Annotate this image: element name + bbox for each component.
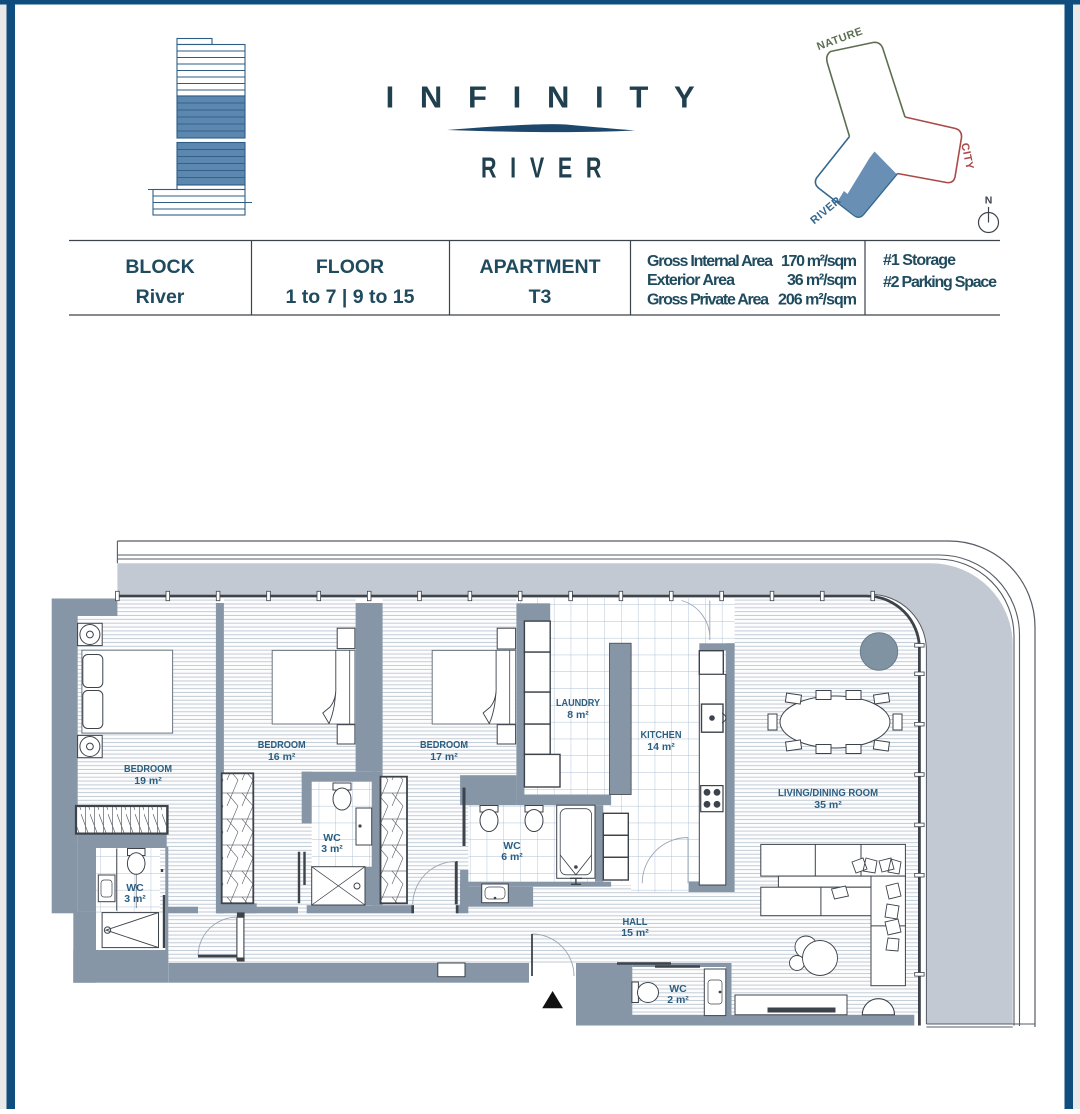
svg-text:8 m²: 8 m²	[567, 709, 589, 721]
svg-text:T3: T3	[529, 286, 552, 308]
svg-text:15 m²: 15 m²	[621, 927, 649, 939]
svg-text:BEDROOM: BEDROOM	[124, 763, 172, 775]
svg-text:INFINITY: INFINITY	[386, 80, 721, 115]
svg-text:FLOOR: FLOOR	[316, 256, 384, 278]
svg-text:Gross Private Area: Gross Private Area	[647, 292, 769, 309]
svg-text:River: River	[136, 286, 185, 308]
svg-text:35 m²: 35 m²	[814, 799, 842, 811]
svg-text:Exterior Area: Exterior Area	[647, 272, 735, 289]
svg-text:17 m²: 17 m²	[430, 751, 458, 763]
svg-text:LAUNDRY: LAUNDRY	[556, 697, 600, 709]
svg-text:3 m²: 3 m²	[124, 893, 146, 905]
svg-text:1 to 7 | 9 to 15: 1 to 7 | 9 to 15	[286, 286, 415, 308]
svg-text:36 m²/sqm: 36 m²/sqm	[787, 272, 857, 289]
svg-text:N: N	[985, 195, 993, 207]
svg-text:2 m²: 2 m²	[667, 994, 689, 1006]
svg-text:KITCHEN: KITCHEN	[641, 729, 682, 741]
svg-text:APARTMENT: APARTMENT	[480, 256, 601, 278]
svg-text:#2 Parking Space: #2 Parking Space	[883, 274, 997, 291]
svg-text:16 m²: 16 m²	[268, 751, 296, 763]
svg-text:RIVER: RIVER	[481, 152, 615, 184]
svg-text:Gross Internal Area: Gross Internal Area	[647, 253, 773, 270]
svg-text:BLOCK: BLOCK	[125, 256, 194, 278]
svg-text:14 m²: 14 m²	[647, 741, 675, 753]
svg-text:170 m²/sqm: 170 m²/sqm	[781, 253, 857, 270]
svg-text:BEDROOM: BEDROOM	[258, 739, 306, 751]
svg-text:#1 Storage: #1 Storage	[883, 252, 956, 269]
svg-text:LIVING/DINING ROOM: LIVING/DINING ROOM	[778, 787, 878, 799]
svg-text:BEDROOM: BEDROOM	[420, 739, 468, 751]
svg-text:6 m²: 6 m²	[501, 851, 523, 863]
svg-text:206 m²/sqm: 206 m²/sqm	[778, 292, 857, 309]
svg-text:19 m²: 19 m²	[134, 775, 162, 787]
svg-text:3 m²: 3 m²	[321, 843, 343, 855]
